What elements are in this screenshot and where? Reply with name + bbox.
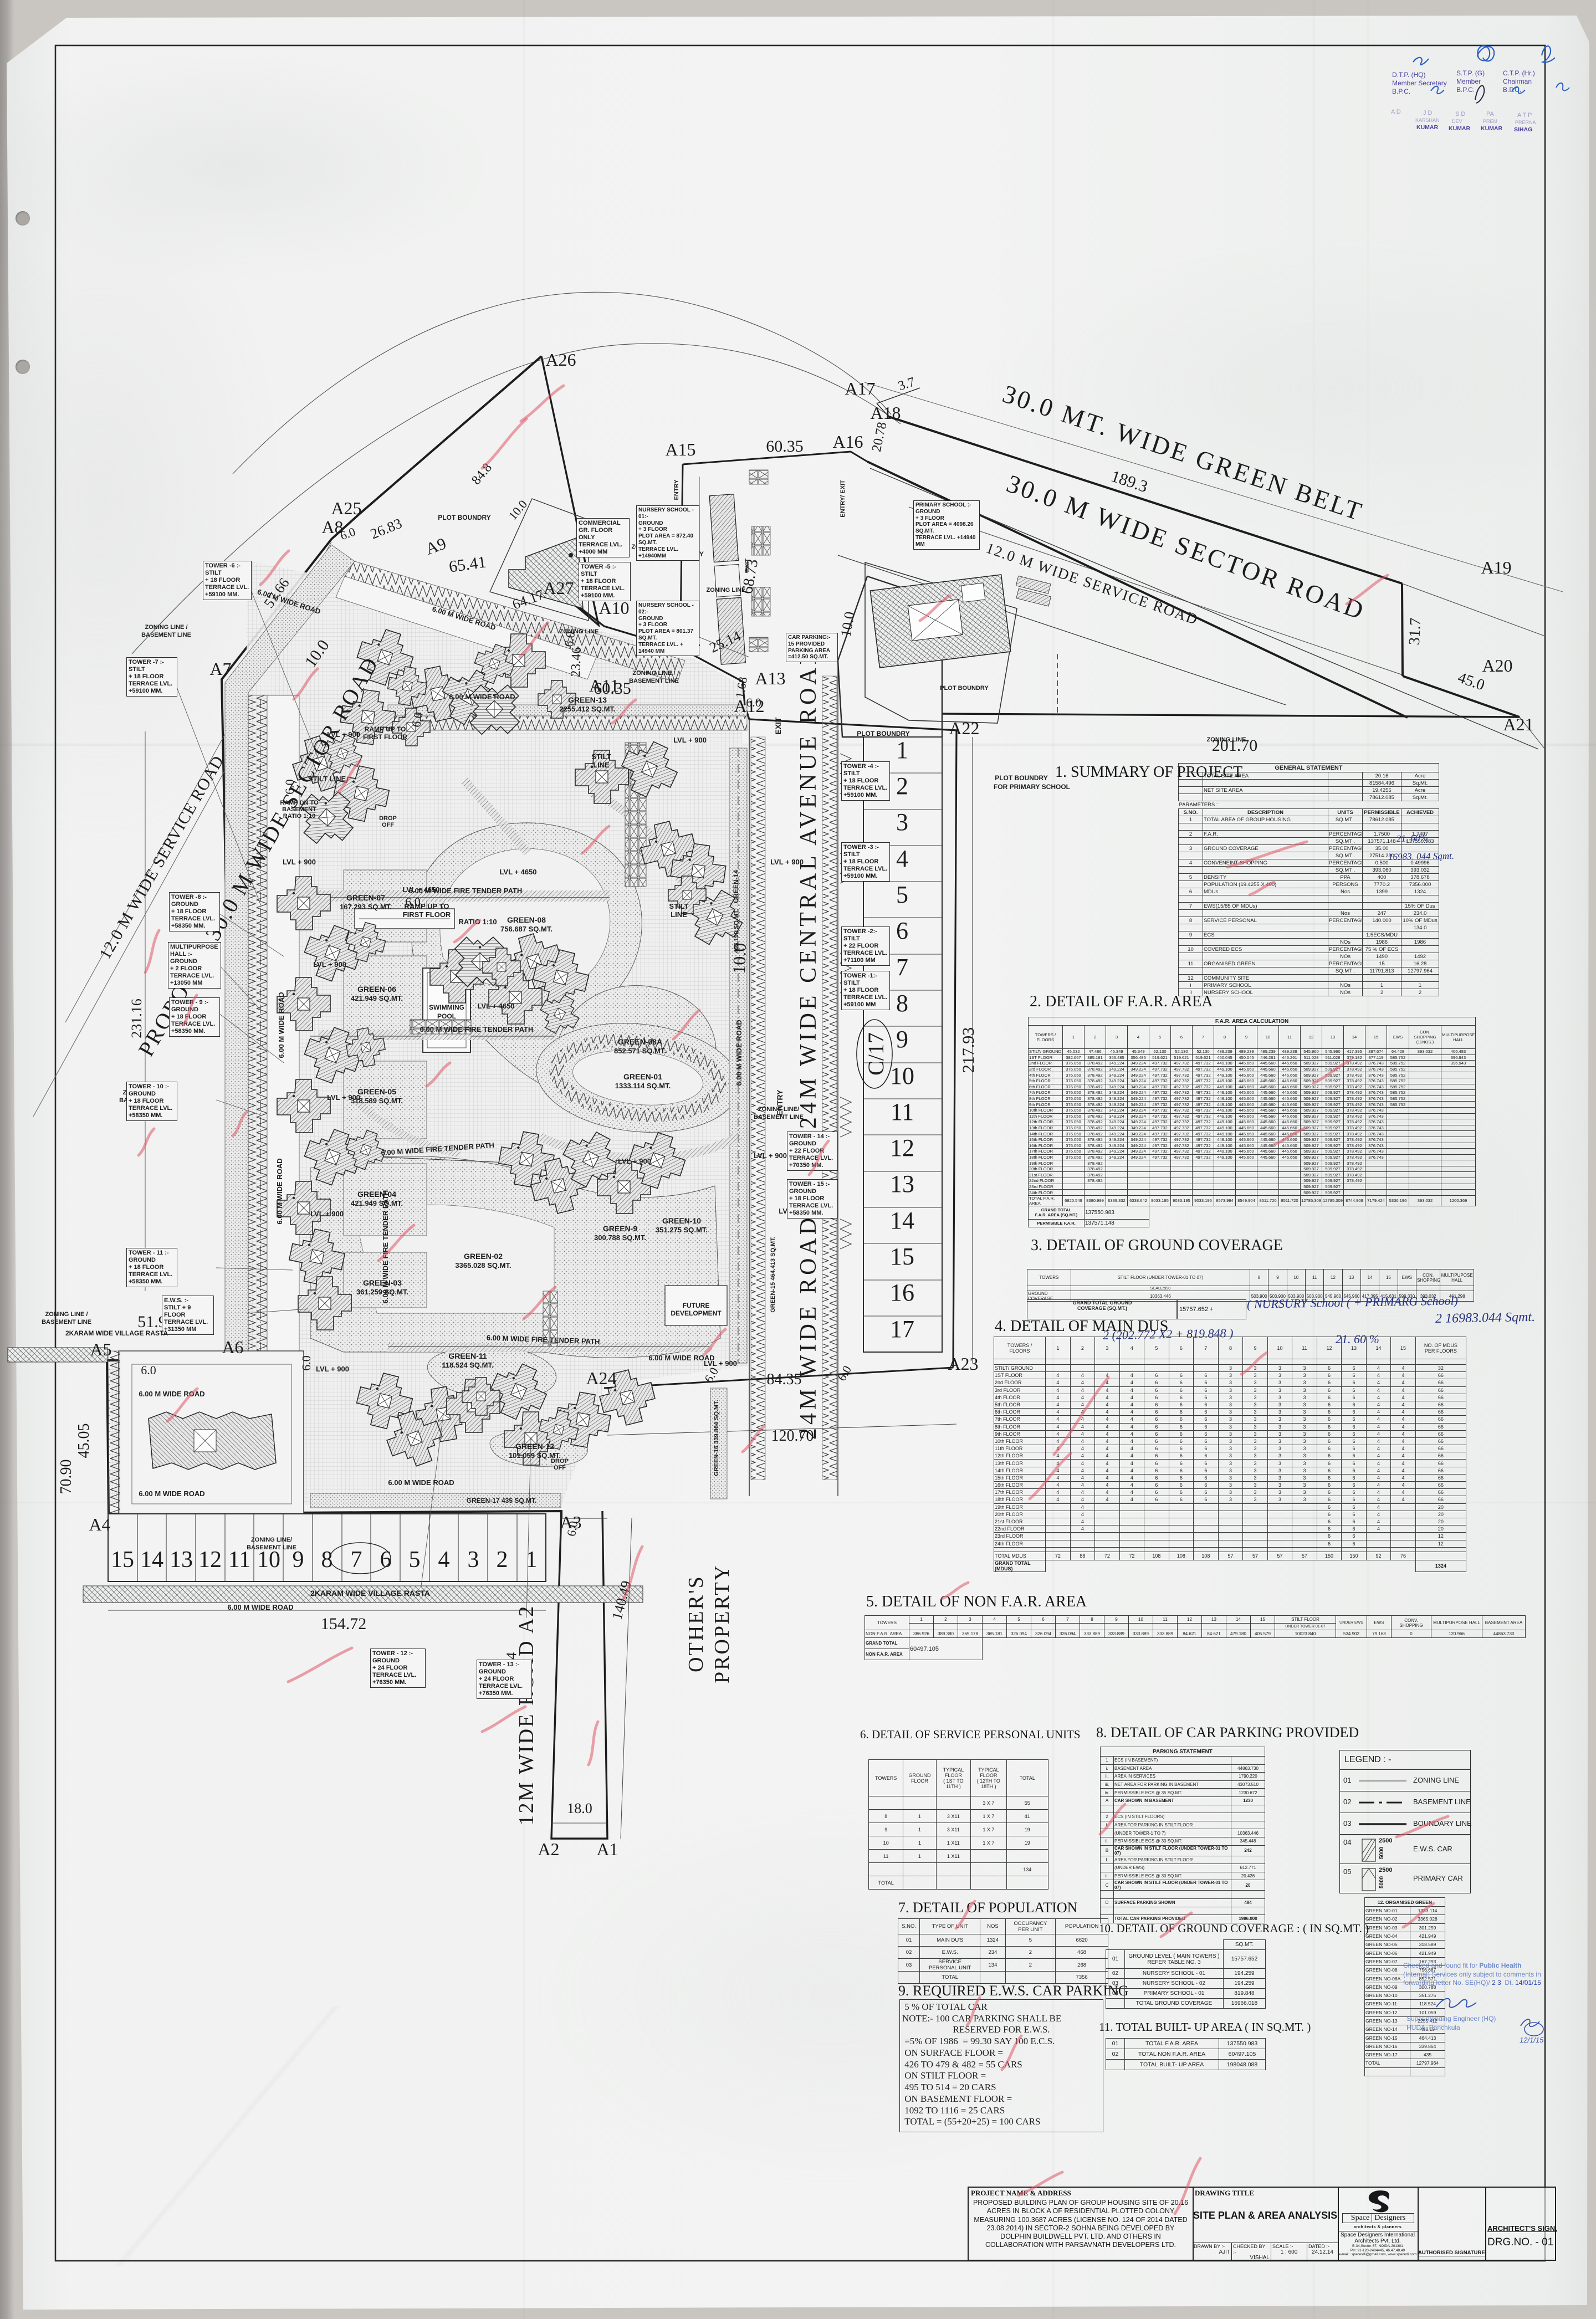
svg-text:756.687 SQ.MT.: 756.687 SQ.MT.: [500, 925, 553, 933]
svg-text:BASEMENT LINE: BASEMENT LINE: [629, 678, 679, 684]
svg-text:45.05: 45.05: [75, 1424, 93, 1458]
svg-text:RATIO 1:10: RATIO 1:10: [458, 918, 497, 926]
svg-text:A19: A19: [1481, 557, 1511, 577]
svg-text:4: 4: [896, 845, 908, 872]
svg-text:5: 5: [896, 881, 908, 908]
svg-text:7: 7: [351, 1547, 362, 1573]
svg-text:167.293 SQ.MT.: 167.293 SQ.MT.: [340, 903, 392, 911]
svg-text:LINE: LINE: [671, 910, 687, 919]
svg-text:17: 17: [890, 1315, 914, 1343]
svg-text:GREEN-04: GREEN-04: [357, 1190, 396, 1199]
svg-text:LVL + 900: LVL + 900: [618, 1157, 651, 1165]
svg-text:RAMP UP TO: RAMP UP TO: [405, 902, 449, 910]
svg-text:20.78: 20.78: [869, 421, 890, 453]
svg-text:LVL + 4650: LVL + 4650: [477, 1002, 514, 1010]
svg-text:18.0: 18.0: [567, 1800, 592, 1816]
svg-text:10: 10: [890, 1062, 914, 1089]
svg-text:5000: 5000: [1379, 1876, 1385, 1888]
svg-text:LVL + 900: LVL + 900: [327, 1093, 360, 1102]
svg-text:10.0: 10.0: [505, 497, 530, 523]
svg-text:1: 1: [526, 1547, 538, 1573]
svg-text:A13: A13: [755, 668, 785, 688]
svg-text:GREEN-11: GREEN-11: [448, 1352, 487, 1360]
svg-text:A23: A23: [948, 1354, 978, 1374]
svg-text:6.0: 6.0: [409, 711, 425, 728]
svg-text:3: 3: [896, 808, 908, 836]
svg-text:300.788 SQ.MT.: 300.788 SQ.MT.: [594, 1233, 646, 1242]
svg-text:13: 13: [170, 1547, 193, 1573]
svg-text:A25: A25: [331, 498, 361, 518]
svg-text:STILT LINE: STILT LINE: [308, 775, 346, 783]
svg-text:9: 9: [896, 1026, 908, 1053]
svg-text:ENTRY: ENTRY: [673, 479, 680, 500]
svg-text:11: 11: [891, 1098, 914, 1125]
svg-text:A15: A15: [665, 439, 695, 459]
svg-text:24M WIDE CENTRAL AVENUE RO: 24M WIDE CENTRAL AVENUE ROAD: [796, 644, 821, 1129]
svg-text:PLOT BOUNDRY: PLOT BOUNDRY: [857, 730, 910, 738]
svg-text:2: 2: [497, 1547, 508, 1573]
svg-text:A3: A3: [560, 1512, 581, 1532]
svg-text:ENTRY/ EXIT: ENTRY/ EXIT: [840, 480, 846, 518]
svg-text:BASEMENT LINE: BASEMENT LINE: [141, 632, 191, 638]
svg-text:A27: A27: [543, 578, 574, 598]
svg-text:421.949 SQ.MT.: 421.949 SQ.MT.: [351, 1199, 403, 1207]
svg-text:PLOT BOUNDRY: PLOT BOUNDRY: [940, 685, 989, 692]
svg-text:RATIO 1:10: RATIO 1:10: [283, 813, 315, 820]
svg-text:GREEN-10: GREEN-10: [662, 1216, 701, 1225]
svg-text:6.0: 6.0: [299, 1355, 313, 1371]
svg-text:7: 7: [896, 954, 908, 981]
svg-text:ENTRY: ENTRY: [775, 1089, 784, 1116]
svg-text:65.41: 65.41: [448, 553, 487, 576]
svg-text:6.00 M WIDE ROAD: 6.00 M WIDE ROAD: [449, 693, 515, 701]
svg-text:10.0: 10.0: [837, 611, 857, 638]
svg-text:DROP: DROP: [379, 815, 397, 822]
svg-text:3365.028 SQ.MT.: 3365.028 SQ.MT.: [455, 1261, 511, 1269]
svg-text:LVL + 900: LVL + 900: [754, 1151, 787, 1160]
svg-text:GREEN-08: GREEN-08: [507, 915, 546, 924]
svg-text:6.00 M WIDE FIRE TENDER PATH: 6.00 M WIDE FIRE TENDER PATH: [420, 1025, 534, 1033]
svg-text:LVL + 900: LVL + 900: [283, 858, 316, 866]
svg-text:31.7: 31.7: [1406, 617, 1425, 646]
svg-text:6.00 M WIDE ROAD: 6.00 M WIDE ROAD: [227, 1603, 293, 1611]
svg-text:ZONING LINE /: ZONING LINE /: [45, 1311, 88, 1318]
svg-text:6.0: 6.0: [141, 1363, 156, 1377]
svg-text:361.259 SQ.MT.: 361.259 SQ.MT.: [356, 1288, 408, 1296]
svg-text:2500: 2500: [1379, 1837, 1392, 1844]
svg-text:A21: A21: [1503, 714, 1533, 734]
svg-text:DEVELOPMENT: DEVELOPMENT: [671, 1309, 722, 1317]
svg-text:ZONING LINE /: ZONING LINE /: [633, 670, 676, 677]
svg-text:A7: A7: [209, 659, 231, 679]
svg-text:6.00 M WIDE ROAD: 6.00 M WIDE ROAD: [735, 1020, 743, 1086]
svg-text:154.72: 154.72: [321, 1615, 367, 1633]
svg-text:GREEN-02: GREEN-02: [464, 1252, 503, 1261]
svg-text:24M WIDE ROAD: 24M WIDE ROAD: [796, 1215, 821, 1440]
svg-text:14: 14: [890, 1207, 914, 1234]
svg-text:6.00 M WIDE ROAD: 6.00 M WIDE ROAD: [277, 992, 285, 1058]
svg-text:231.16: 231.16: [129, 999, 145, 1038]
svg-text:LVL + 900: LVL + 900: [673, 736, 707, 744]
svg-text:BASEMENT LINE: BASEMENT LINE: [247, 1544, 296, 1551]
svg-text:84.8: 84.8: [469, 460, 495, 488]
svg-text:LVL + 900: LVL + 900: [316, 1365, 349, 1373]
svg-text:A5: A5: [90, 1339, 111, 1359]
svg-text:12: 12: [198, 1547, 222, 1573]
svg-text:GREEN-06: GREEN-06: [357, 985, 396, 994]
svg-text:LVL + 4650: LVL + 4650: [499, 868, 536, 876]
svg-text:2500: 2500: [1379, 1867, 1392, 1873]
svg-text:A20: A20: [1482, 656, 1512, 675]
svg-text:101.059 SQ.MT.: 101.059 SQ.MT.: [509, 1451, 561, 1460]
svg-text:C/17: C/17: [863, 1032, 888, 1076]
svg-text:ZONING LINE: ZONING LINE: [1207, 736, 1246, 743]
svg-text:FOR PRIMARY SCHOOL: FOR PRIMARY SCHOOL: [994, 783, 1070, 791]
svg-text:12M WIDE ROAD A2: 12M WIDE ROAD A2: [515, 1605, 538, 1826]
svg-text:PLOT BOUNDRY: PLOT BOUNDRY: [995, 774, 1048, 782]
svg-text:A6: A6: [222, 1337, 243, 1357]
svg-text:FIRST FLOOR: FIRST FLOOR: [363, 733, 407, 741]
svg-text:ZONING LINE /: ZONING LINE /: [145, 624, 188, 631]
svg-text:OTHER'S: OTHER'S: [684, 1575, 708, 1672]
svg-text:OFF: OFF: [554, 1465, 566, 1471]
svg-text:16: 16: [890, 1279, 914, 1306]
svg-text:1333.114 SQ.MT.: 1333.114 SQ.MT.: [615, 1082, 671, 1090]
svg-text:LVL + 900: LVL + 900: [310, 1210, 344, 1218]
svg-text:GREEN-01: GREEN-01: [623, 1072, 662, 1081]
svg-text:A16: A16: [832, 432, 863, 452]
svg-text:A9: A9: [423, 534, 449, 559]
svg-text:A26: A26: [545, 350, 576, 370]
svg-text:A18: A18: [870, 403, 901, 423]
svg-text:POOL: POOL: [437, 1012, 456, 1020]
svg-text:BASEMENT LINE: BASEMENT LINE: [42, 1319, 91, 1325]
svg-text:LINE: LINE: [593, 761, 610, 769]
svg-text:GREEN-9: GREEN-9: [603, 1224, 637, 1233]
svg-text:GREEN-13: GREEN-13: [568, 695, 607, 704]
svg-text:GREEN-08A: GREEN-08A: [618, 1037, 662, 1046]
svg-text:6.00 M WIDE ROAD: 6.00 M WIDE ROAD: [275, 1158, 284, 1224]
svg-text:23.46: 23.46: [569, 647, 584, 677]
svg-text:6.0: 6.0: [835, 1363, 854, 1383]
svg-text:4: 4: [438, 1547, 450, 1573]
svg-text:3.7: 3.7: [897, 375, 917, 393]
svg-text:189.3: 189.3: [1109, 467, 1150, 496]
svg-text:GREEN-05: GREEN-05: [357, 1087, 396, 1096]
svg-text:LVL + 900: LVL + 900: [704, 1359, 737, 1368]
svg-text:RAMP UP TO: RAMP UP TO: [365, 725, 406, 733]
svg-text:15: 15: [890, 1243, 914, 1270]
svg-text:6.00 M WIDE ROAD: 6.00 M WIDE ROAD: [139, 1489, 204, 1498]
svg-text:GREEN-17 435 SQ.MT.: GREEN-17 435 SQ.MT.: [467, 1497, 537, 1504]
svg-text:26.83: 26.83: [368, 515, 404, 542]
svg-text:EXIT: EXIT: [744, 558, 751, 572]
svg-text:6.00 M WIDE ROAD: 6.00 M WIDE ROAD: [388, 1478, 454, 1487]
svg-text:A22: A22: [949, 718, 979, 738]
svg-text:852.571 SQ.MT.: 852.571 SQ.MT.: [614, 1047, 666, 1055]
svg-text:6: 6: [896, 917, 908, 944]
svg-text:FIRST FLOOR: FIRST FLOOR: [403, 910, 451, 919]
svg-text:84.35: 84.35: [767, 1371, 802, 1388]
svg-text:6.00 M WIDE ROAD: 6.00 M WIDE ROAD: [139, 1390, 204, 1398]
svg-text:6.0: 6.0: [283, 779, 296, 795]
svg-text:A2: A2: [538, 1839, 559, 1859]
svg-text:A11: A11: [589, 675, 619, 695]
svg-text:ZONING LINE: ZONING LINE: [707, 587, 746, 593]
svg-text:GREEN-07: GREEN-07: [346, 893, 385, 902]
svg-text:ZONING LINE/: ZONING LINE/: [251, 1537, 292, 1543]
svg-text:15: 15: [111, 1547, 134, 1573]
svg-text:217.93: 217.93: [959, 1027, 978, 1073]
svg-text:A1: A1: [596, 1839, 618, 1859]
svg-text:A8: A8: [321, 517, 343, 537]
svg-text:120.70: 120.70: [771, 1427, 814, 1445]
svg-text:3: 3: [468, 1547, 479, 1573]
svg-text:5000: 5000: [1379, 1846, 1385, 1859]
svg-text:2255.412 SQ.MT.: 2255.412 SQ.MT.: [559, 705, 615, 713]
svg-text:60.35: 60.35: [766, 437, 804, 455]
svg-text:2: 2: [896, 772, 908, 800]
svg-text:A24: A24: [586, 1368, 616, 1388]
svg-text:13: 13: [890, 1170, 914, 1197]
svg-text:A17: A17: [845, 378, 875, 398]
svg-text:GREEN-14: GREEN-14: [732, 870, 740, 903]
svg-text:6: 6: [380, 1547, 392, 1573]
svg-text:14: 14: [140, 1547, 163, 1573]
svg-text:GREEN-12: GREEN-12: [515, 1442, 554, 1451]
svg-text:EXIT: EXIT: [774, 717, 782, 735]
svg-text:BASEMENT: BASEMENT: [282, 806, 316, 813]
svg-text:118.524 SQ.MT.: 118.524 SQ.MT.: [442, 1361, 493, 1369]
svg-text:LVL + 900: LVL + 900: [313, 960, 346, 969]
svg-text:493.190 SQ.MT.: 493.190 SQ.MT.: [733, 909, 740, 953]
svg-text:GREEN-15 464.413 SQ.MT.: GREEN-15 464.413 SQ.MT.: [770, 1236, 776, 1313]
svg-text:12: 12: [890, 1134, 914, 1161]
svg-text:A4: A4: [89, 1514, 110, 1534]
svg-text:OFF: OFF: [382, 822, 394, 828]
svg-text:PROPERTY: PROPERTY: [710, 1564, 734, 1683]
svg-text:1: 1: [896, 736, 908, 764]
svg-text:PLOT BOUNDRY: PLOT BOUNDRY: [438, 514, 491, 521]
svg-text:8: 8: [321, 1547, 333, 1573]
svg-text:RAMP DN TO: RAMP DN TO: [280, 800, 319, 806]
svg-text:GREEN-03: GREEN-03: [363, 1278, 402, 1287]
svg-text:12/1/15: 12/1/15: [1520, 2036, 1544, 2044]
svg-text:70.90: 70.90: [58, 1460, 75, 1494]
svg-text:8: 8: [896, 990, 908, 1017]
svg-text:GREEN-16 339.864 SQ.MT.: GREEN-16 339.864 SQ.MT.: [713, 1400, 720, 1476]
svg-text:ZONING LINE: ZONING LINE: [560, 628, 599, 635]
svg-text:SWIMMING: SWIMMING: [429, 1004, 464, 1011]
svg-text:351.275 SQ.MT.: 351.275 SQ.MT.: [656, 1226, 708, 1234]
svg-text:LVL + 4650: LVL + 4650: [402, 885, 439, 894]
svg-text:STILT: STILT: [591, 752, 611, 761]
svg-text:421.949 SQ.MT.: 421.949 SQ.MT.: [351, 994, 403, 1002]
svg-text:LVL + 900: LVL + 900: [327, 730, 360, 739]
svg-text:FUTURE: FUTURE: [683, 1302, 710, 1309]
svg-text:LVL + 900: LVL + 900: [770, 858, 804, 866]
svg-text:STILT: STILT: [669, 902, 688, 910]
svg-text:5: 5: [409, 1547, 421, 1573]
svg-text:A12: A12: [734, 696, 764, 716]
